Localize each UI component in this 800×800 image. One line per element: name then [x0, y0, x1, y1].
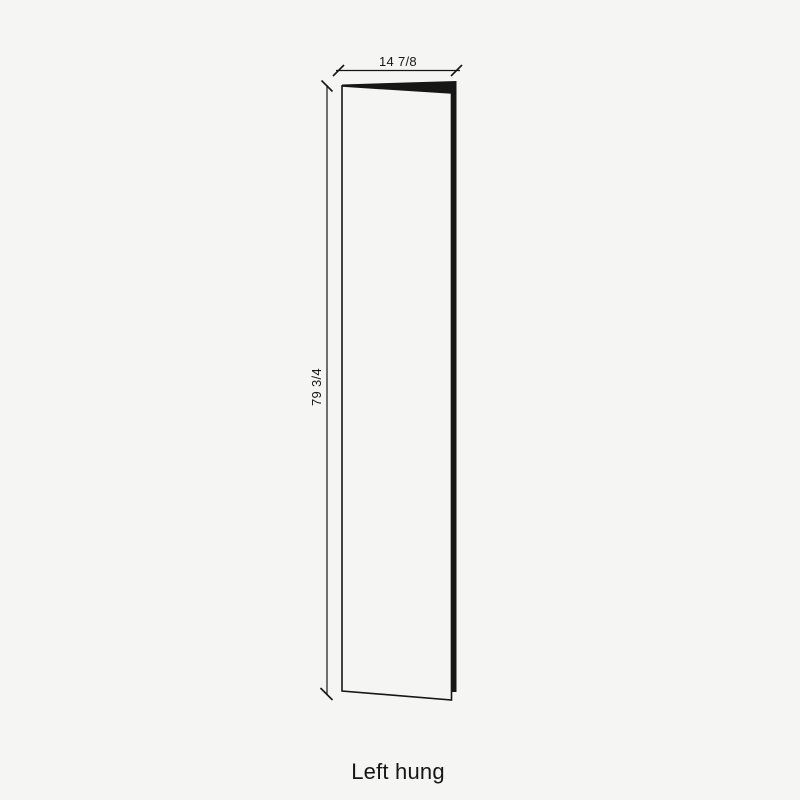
door-front-face	[342, 86, 452, 700]
door-dimension-diagram: 14 7/8 79 3/4 Left hung	[0, 0, 800, 800]
door-panel	[342, 81, 457, 700]
height-dimension-label: 79 3/4	[309, 368, 324, 406]
caption-label: Left hung	[351, 759, 445, 784]
height-dimension: 79 3/4	[309, 81, 333, 701]
door-diagram-canvas: 14 7/8 79 3/4 Left hung	[0, 0, 800, 800]
width-dimension: 14 7/8	[333, 54, 462, 76]
width-dimension-label: 14 7/8	[379, 54, 417, 69]
